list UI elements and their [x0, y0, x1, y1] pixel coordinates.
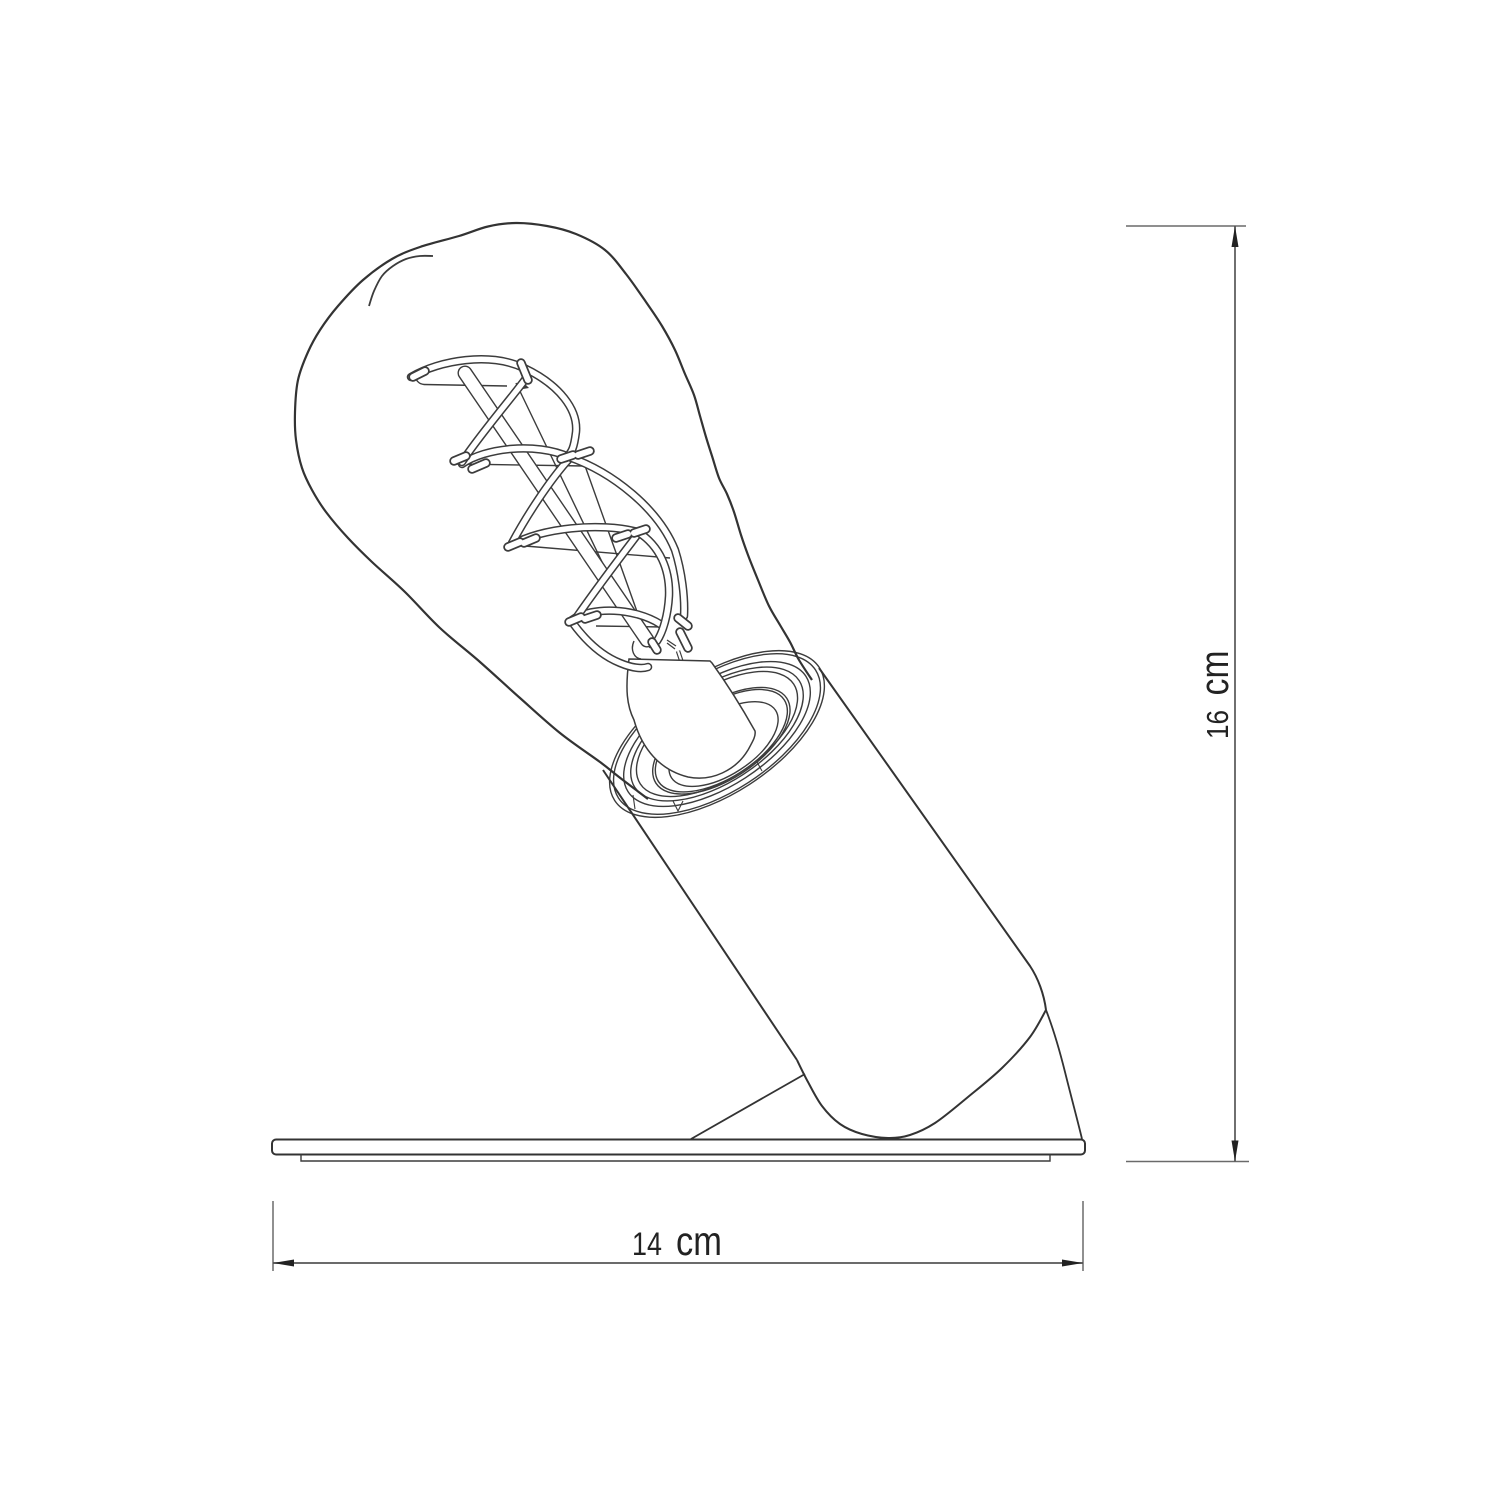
- svg-text:14: 14: [632, 1227, 662, 1263]
- svg-text:16: 16: [1201, 710, 1236, 739]
- svg-text:cm: cm: [676, 1219, 722, 1264]
- svg-text:cm: cm: [1192, 651, 1236, 696]
